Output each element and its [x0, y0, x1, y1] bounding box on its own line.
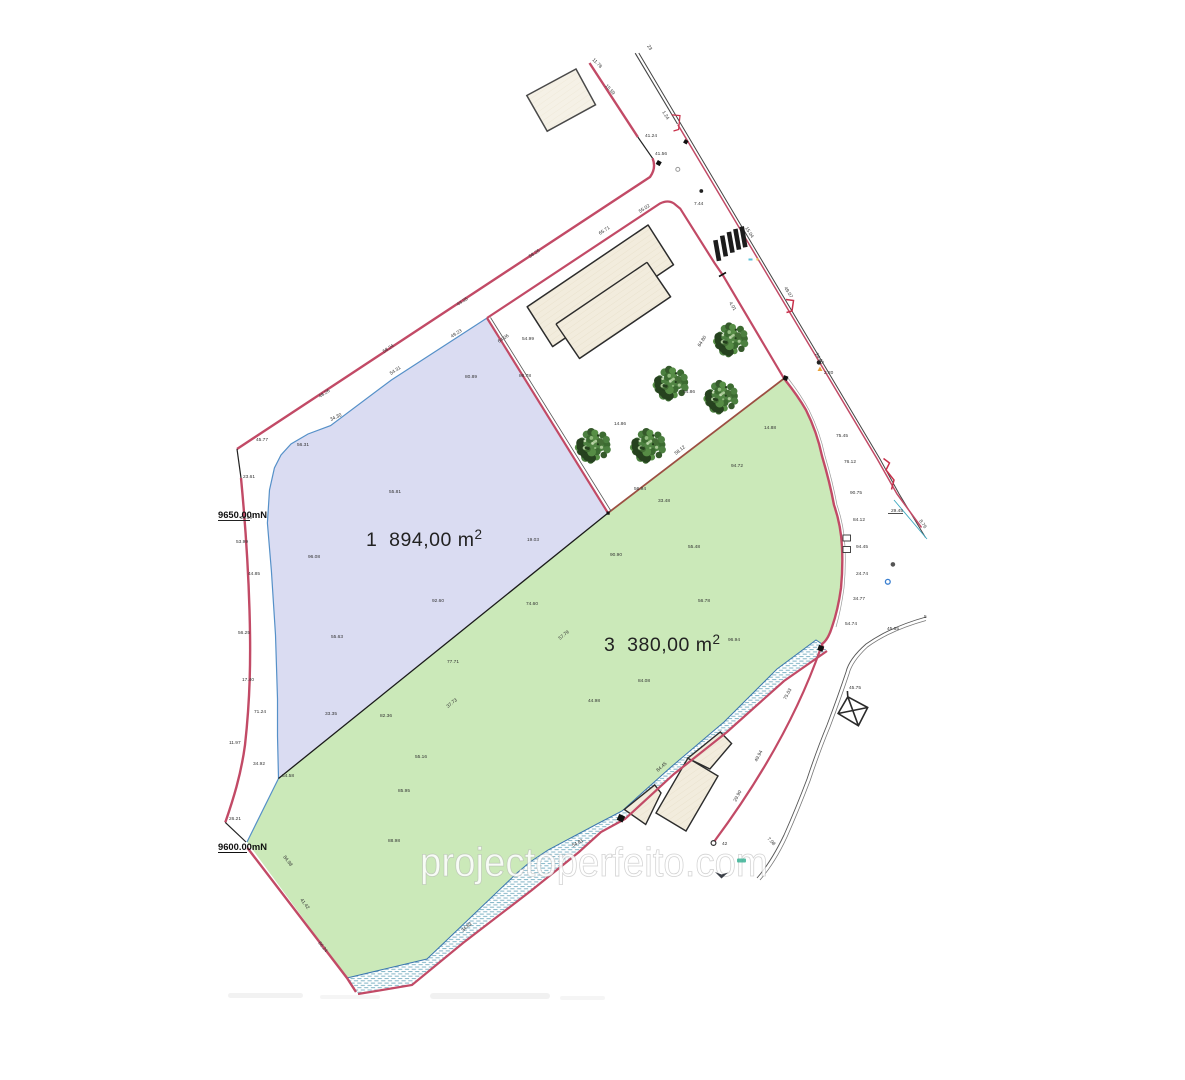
svg-text:17.40: 17.40	[242, 677, 254, 683]
svg-text:96.94: 96.94	[728, 637, 740, 643]
svg-text:55.16: 55.16	[415, 754, 427, 760]
svg-text:44.85: 44.85	[248, 571, 260, 577]
svg-text:24.74: 24.74	[856, 571, 868, 577]
svg-text:2.20: 2.20	[824, 370, 834, 376]
svg-text:33.48: 33.48	[658, 498, 670, 504]
svg-text:88.98: 88.98	[388, 838, 400, 844]
svg-text:45.77: 45.77	[256, 437, 268, 443]
svg-text:55.48: 55.48	[688, 544, 700, 550]
svg-text:80.89: 80.89	[465, 374, 477, 380]
svg-text:45.65: 45.65	[887, 626, 899, 632]
svg-text:54.99: 54.99	[522, 336, 534, 342]
svg-text:56.25: 56.25	[238, 630, 250, 636]
svg-text:54.74: 54.74	[845, 621, 857, 627]
svg-text:77.71: 77.71	[447, 659, 459, 665]
svg-text:44.98: 44.98	[588, 698, 600, 704]
svg-text:projectoperfeito.com: projectoperfeito.com	[420, 839, 768, 885]
svg-text:41.24: 41.24	[645, 133, 657, 139]
svg-text:34.77: 34.77	[853, 596, 865, 602]
svg-text:71.24: 71.24	[254, 709, 266, 715]
svg-text:74.60: 74.60	[526, 601, 538, 607]
svg-text:86.78: 86.78	[519, 373, 531, 379]
svg-text:11.97: 11.97	[229, 740, 241, 746]
svg-text:19.03: 19.03	[527, 537, 539, 543]
svg-text:55.81: 55.81	[389, 489, 401, 495]
svg-text:56.94: 56.94	[634, 486, 646, 492]
svg-text:56.78: 56.78	[698, 598, 710, 604]
svg-text:94.72: 94.72	[731, 463, 743, 469]
svg-text:26.21: 26.21	[229, 816, 241, 822]
svg-text:82.36: 82.36	[380, 713, 392, 719]
svg-text:84.12: 84.12	[853, 517, 865, 523]
svg-text:9600.00mN: 9600.00mN	[218, 841, 267, 852]
svg-text:14.86: 14.86	[614, 421, 626, 427]
svg-text:92.60: 92.60	[432, 598, 444, 604]
svg-text:33.35: 33.35	[325, 711, 337, 717]
svg-text:90.90: 90.90	[610, 552, 622, 558]
svg-text:85.95: 85.95	[398, 788, 410, 794]
svg-text:14.88: 14.88	[764, 425, 776, 431]
svg-text:84.08: 84.08	[638, 678, 650, 684]
svg-text:94.45: 94.45	[856, 544, 868, 550]
svg-text:54.86: 54.86	[683, 389, 695, 395]
svg-text:75.45: 75.45	[836, 433, 848, 439]
svg-text:76.12: 76.12	[844, 459, 856, 465]
svg-text:90.75: 90.75	[850, 490, 862, 496]
svg-text:96.08: 96.08	[308, 554, 320, 560]
svg-text:41.56: 41.56	[655, 151, 667, 157]
svg-text:56.31: 56.31	[297, 442, 309, 448]
svg-text:34.92: 34.92	[253, 761, 265, 767]
svg-text:54.58: 54.58	[282, 773, 294, 779]
svg-text:53.99: 53.99	[236, 539, 248, 545]
svg-text:7.44: 7.44	[694, 201, 704, 207]
svg-text:45.75: 45.75	[849, 685, 861, 691]
svg-text:23.61: 23.61	[243, 474, 255, 480]
svg-text:5: 5	[924, 614, 927, 620]
svg-text:44.80: 44.80	[240, 515, 252, 521]
svg-text:1 894,00 m2: 1 894,00 m2	[366, 527, 483, 551]
svg-text:55.63: 55.63	[331, 634, 343, 640]
svg-text:3 380,00 m2: 3 380,00 m2	[604, 632, 721, 656]
